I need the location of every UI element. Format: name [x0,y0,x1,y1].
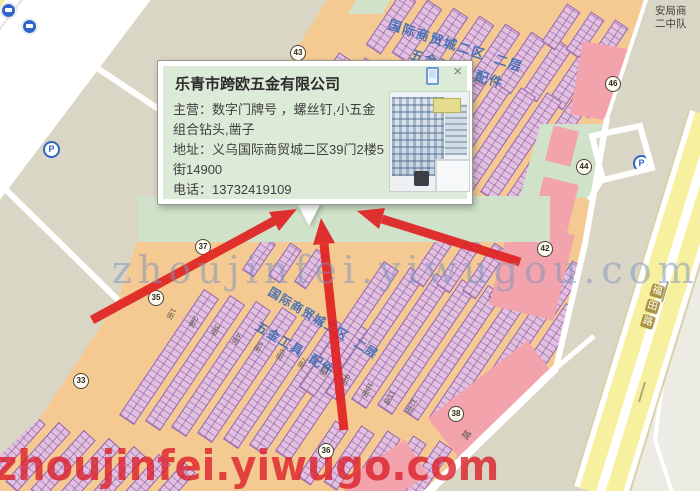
annotation-arrow [92,208,520,430]
annotation-arrows [0,0,700,491]
map-viewport[interactable]: 福 田 路 国际商贸城二区 二层 五金工具 配件 国际商贸城二区 二层 五金工具… [0,0,700,491]
watermark-bottom: zhoujinfei.yiwugo.com [0,441,499,490]
watermark-center: zhoujinfei.yiwugou.com [112,248,700,292]
